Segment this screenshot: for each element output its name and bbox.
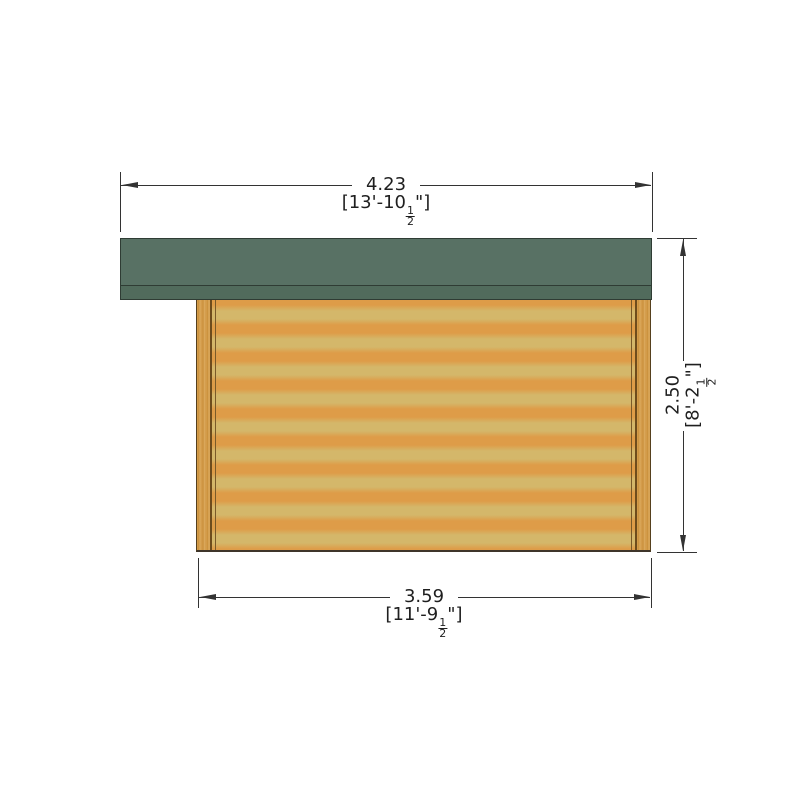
extension-line xyxy=(657,238,697,239)
corner-joint-line-right xyxy=(631,300,632,550)
imperial-prefix: [8'-2 xyxy=(682,386,703,427)
corner-joint-line-left xyxy=(215,300,216,550)
technical-drawing: 4.23 [13'-1012"] 2.50 [8'-212"] 3.59 [11… xyxy=(0,0,800,800)
roof xyxy=(120,238,652,300)
arrow-right-icon xyxy=(634,594,650,600)
extension-line xyxy=(657,552,697,553)
imperial-suffix: "] xyxy=(447,604,462,625)
fraction: 12 xyxy=(696,377,717,386)
arrow-down-icon xyxy=(680,535,686,551)
extension-line xyxy=(652,172,653,232)
bottom-width-imperial: [11'-912"] xyxy=(385,605,462,639)
dimension-line xyxy=(683,239,684,361)
imperial-prefix: [13'-10 xyxy=(342,192,406,213)
dimension-line xyxy=(121,185,352,186)
arrow-up-icon xyxy=(680,240,686,256)
right-height-imperial: [8'-212"] xyxy=(683,362,717,428)
fraction: 12 xyxy=(438,618,447,639)
fraction: 12 xyxy=(406,206,415,227)
dimension-line xyxy=(199,597,390,598)
right-height-metric: 2.50 xyxy=(663,362,683,428)
extension-line xyxy=(651,558,652,608)
arrow-left-icon xyxy=(200,594,216,600)
imperial-suffix: "] xyxy=(415,192,430,213)
right-height-text: 2.50 [8'-212"] xyxy=(663,362,717,428)
arrow-right-icon xyxy=(635,182,651,188)
corner-joint-left xyxy=(197,300,212,550)
corner-joint-right xyxy=(635,300,650,550)
roof-fascia xyxy=(121,285,651,299)
imperial-prefix: [11'-9 xyxy=(385,604,438,625)
top-width-imperial: [13'-1012"] xyxy=(342,193,431,227)
extension-line xyxy=(120,172,121,232)
wall-cladding xyxy=(196,300,651,552)
extension-line xyxy=(198,558,199,608)
dimension-line xyxy=(683,431,684,551)
dimension-line xyxy=(420,185,651,186)
arrow-left-icon xyxy=(122,182,138,188)
dimension-line xyxy=(458,597,650,598)
imperial-suffix: "] xyxy=(682,362,703,377)
